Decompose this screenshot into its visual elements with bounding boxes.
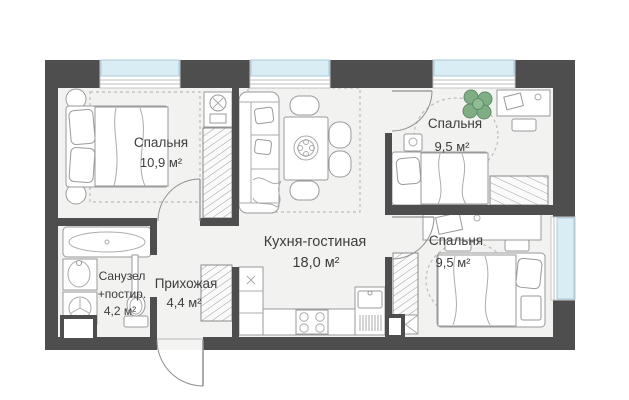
window: [433, 60, 515, 88]
sofa: [239, 92, 281, 213]
window: [100, 60, 180, 88]
nightstand: [404, 134, 422, 151]
wall-bathroom-right: [150, 297, 157, 337]
hallway-wardrobe: [201, 265, 232, 321]
bathroom-name-line2: +постир.: [98, 287, 146, 301]
wall-bedrooms-divider: [385, 205, 553, 215]
floor-plan-canvas: Спальня 10,9 м² Кухня-гостиная 18,0 м² С…: [0, 0, 629, 400]
stove: [296, 310, 328, 334]
desk-drawer: [505, 240, 529, 251]
wardrobe: [393, 253, 418, 315]
kitchen-sink: [355, 287, 385, 335]
wall-right: [553, 60, 575, 217]
wall-bathroom-top: [58, 218, 157, 226]
wall-bathroom-right: [150, 226, 157, 255]
dressing-table: [204, 92, 232, 127]
desk-chair: [512, 119, 536, 131]
bathroom-area: 4,2 м²: [104, 304, 136, 318]
hallway-name: Прихожая: [155, 276, 218, 291]
single-bed: [392, 152, 488, 205]
window: [551, 217, 575, 300]
bedside-shelf: [521, 296, 541, 320]
wall-hallway-top: [200, 218, 239, 226]
bedroom-left-name: Спальня: [134, 135, 188, 150]
bedroom-top-right-name: Спальня: [428, 116, 482, 131]
bedroom-top-right-area: 9,5 м²: [435, 139, 471, 154]
hallway-area: 4,4 м²: [167, 295, 203, 310]
bedroom-left-area: 10,9 м²: [140, 155, 183, 170]
plant: [463, 90, 492, 119]
bedroom-bottom-right-area: 9,5 м²: [436, 255, 472, 270]
shaft: [387, 316, 403, 337]
wall-left: [45, 60, 58, 350]
fridge-cabinet: [239, 267, 263, 335]
dining-table: [284, 117, 328, 180]
wardrobe: [203, 128, 232, 218]
bedroom-bottom-right-name: Спальня: [429, 233, 483, 248]
kitchen-living-area: 18,0 м²: [292, 255, 339, 271]
floor-plan: Спальня 10,9 м² Кухня-гостиная 18,0 м² С…: [0, 0, 629, 400]
wall-right: [553, 300, 575, 350]
kitchen-living-name: Кухня-гостиная: [264, 234, 367, 250]
wardrobe: [490, 176, 548, 205]
washbasin: [63, 259, 97, 290]
window: [250, 60, 330, 88]
shaft: [62, 317, 95, 340]
bathroom-name-line1: Санузел: [99, 269, 146, 283]
wall-bedrooms-left: [385, 133, 392, 205]
bathtub: [63, 227, 151, 257]
wall-hallway-right: [232, 267, 239, 337]
wall-bedroom-left: [232, 88, 239, 226]
